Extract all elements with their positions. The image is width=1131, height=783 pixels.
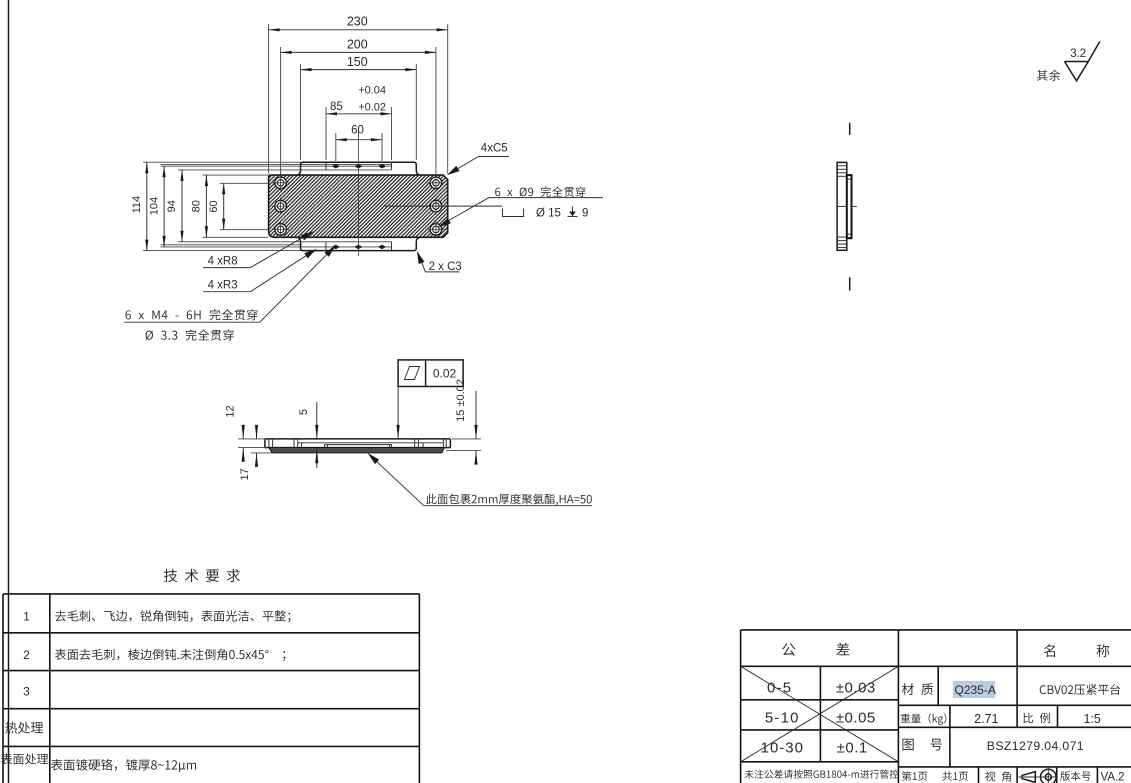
svg-text:0.02: 0.02: [433, 367, 457, 381]
svg-text:94: 94: [166, 200, 178, 212]
svg-text:104: 104: [148, 197, 160, 215]
svg-text:VA.2: VA.2: [1101, 772, 1125, 783]
svg-text:1: 1: [23, 610, 30, 624]
svg-text:3: 3: [23, 685, 30, 699]
svg-text:2 x C3: 2 x C3: [429, 261, 462, 273]
svg-text:5-10: 5-10: [765, 709, 800, 726]
svg-text:85: 85: [330, 101, 343, 113]
svg-text:60: 60: [208, 200, 220, 212]
svg-text:12: 12: [224, 405, 236, 417]
svg-text:60: 60: [351, 125, 364, 137]
svg-text:200: 200: [347, 38, 368, 52]
svg-text:±0.1: ±0.1: [837, 740, 868, 757]
svg-text:230: 230: [347, 15, 368, 29]
svg-text:+0.04: +0.04: [358, 84, 386, 96]
svg-text:114: 114: [131, 196, 143, 214]
svg-text:4 xR3: 4 xR3: [208, 280, 238, 292]
svg-text:80: 80: [191, 200, 203, 212]
svg-text:+0.02: +0.02: [358, 101, 386, 113]
svg-text:2.71: 2.71: [974, 712, 998, 726]
svg-text:5: 5: [298, 409, 310, 415]
svg-text:Q235-A: Q235-A: [955, 683, 996, 697]
svg-text:17: 17: [239, 468, 251, 480]
svg-text:3.2: 3.2: [1070, 48, 1086, 60]
svg-text:±0.03: ±0.03: [836, 679, 876, 696]
svg-text:1:5: 1:5: [1084, 712, 1101, 726]
svg-text:15 ±0.02: 15 ±0.02: [455, 379, 467, 422]
svg-text:Ø 15: Ø 15: [536, 208, 561, 220]
svg-text:0-5: 0-5: [767, 679, 792, 696]
svg-text:10-30: 10-30: [761, 740, 804, 757]
svg-text:4 xR8: 4 xR8: [208, 255, 238, 267]
svg-text:9: 9: [582, 208, 588, 220]
svg-text:4xC5: 4xC5: [481, 142, 508, 154]
svg-text:150: 150: [347, 55, 368, 69]
svg-text:BSZ1279.04.071: BSZ1279.04.071: [987, 739, 1084, 753]
svg-text:2: 2: [23, 648, 30, 662]
svg-text:±0.05: ±0.05: [836, 709, 876, 726]
